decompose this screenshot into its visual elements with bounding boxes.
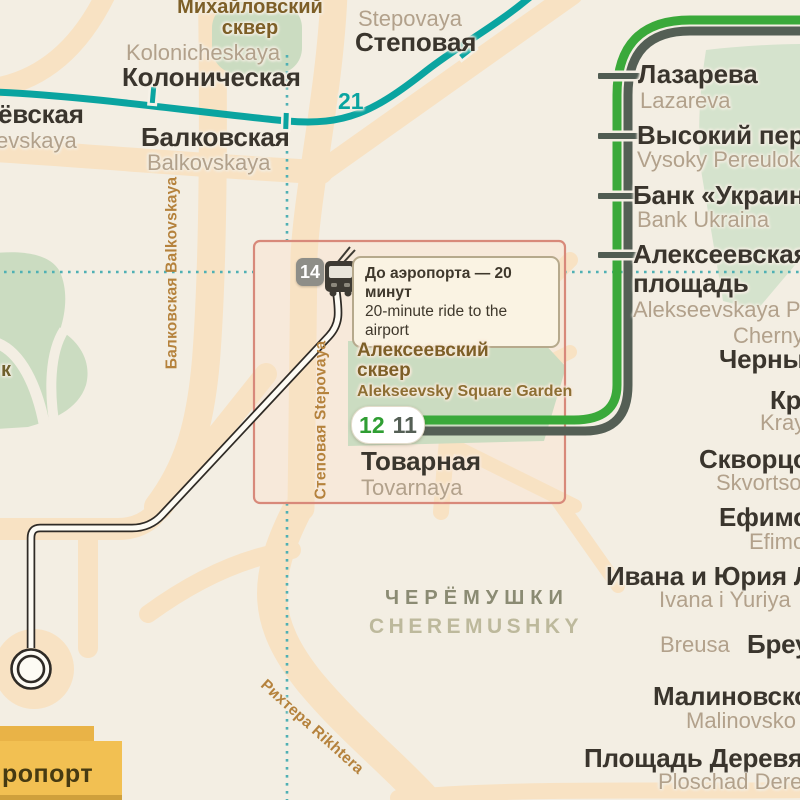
- route-number-21: 21: [338, 89, 364, 114]
- station-bank-ukraina: Банк «Украина: [633, 181, 800, 210]
- airport-tooltip: До аэропорта — 20 минут 20-minute ride t…: [352, 256, 560, 348]
- park-west-label-fragment: к: [1, 359, 11, 381]
- station-balkovskaya: Балковская: [141, 123, 290, 152]
- route-badge-12: 12: [359, 412, 385, 439]
- transit-map: ропорт ёвская evskaya Kolonicheskaya Кол…: [0, 0, 800, 800]
- station-alekseevskaya-ploschad: Алексеевская площадь: [633, 240, 800, 297]
- station-tovarnaya: Товарная: [361, 447, 481, 476]
- station-alekseevskaya-ploschad-translit: Alekseevskaya Pl: [633, 298, 800, 322]
- park-label-mikhailovsky: Михайловский сквер: [177, 0, 323, 39]
- station-lazareva-translit: Lazareva: [640, 89, 731, 113]
- station-efimo: Ефимо: [719, 503, 800, 532]
- district-label-ru: ЧЕРЁМУШКИ: [385, 587, 569, 609]
- airport-building-edge: [0, 795, 122, 800]
- station-tovarnaya-translit: Tovarnaya: [361, 476, 463, 500]
- station-kolonicheskaya: Колоническая: [122, 63, 301, 92]
- route-badge-11: 11: [393, 412, 417, 439]
- station-ploschad-derevyan-translit: Ploschad Derevyan: [658, 770, 800, 794]
- street-label-stepovaya: Степовая Stepovaya: [312, 341, 329, 500]
- park-alekseevsky-en: Alekseevsky Square Garden: [357, 384, 572, 401]
- station-bank-ukraina-translit: Bank Ukraina: [637, 208, 769, 232]
- park-label-mikhailovsky-line1: Михайловский: [177, 0, 323, 18]
- station-vysoky-pereulok-translit: Vysoky Pereulok: [637, 148, 800, 172]
- airport-tooltip-ru: До аэропорта — 20 минут: [365, 264, 547, 302]
- station-breusa: Бреу: [747, 630, 800, 659]
- district-label-en: CHEREMUSHKY: [369, 615, 583, 638]
- street-balkovskaya-ru: Балковская: [163, 277, 180, 369]
- station-malinovsko-translit: Malinovsko: [686, 709, 796, 733]
- station-breusa-translit: Breusa: [660, 633, 730, 657]
- station-malinovsko: Малиновско: [653, 682, 800, 711]
- airport-label: ропорт: [2, 761, 93, 789]
- station-ivana-i-yuriya-translit: Ivana i Yuriya: [659, 588, 791, 612]
- route-badges-12-11: 1211: [351, 406, 425, 444]
- station-evskaya-translit: evskaya: [0, 129, 77, 153]
- station-vysoky-pereulok: Высокий пере: [637, 121, 800, 150]
- street-stepovaya-ru: Степовая: [312, 425, 329, 500]
- street-stepovaya-en: Stepovaya: [312, 341, 329, 420]
- station-efimo-translit: Efimo: [749, 530, 800, 554]
- station-cherny: Черны: [719, 345, 800, 374]
- airport-tooltip-en: 20-minute ride to the airport: [365, 302, 547, 340]
- station-balkovskaya-translit: Balkovskaya: [147, 151, 271, 175]
- station-stepovaya: Степовая: [355, 28, 476, 57]
- street-label-balkovskaya: Балковская Balkovskaya: [163, 177, 180, 369]
- terminal-loop-inner: [18, 656, 44, 682]
- park-label-mikhailovsky-line2: сквер: [177, 18, 323, 39]
- station-lazareva: Лазарева: [638, 60, 758, 89]
- station-evskaya: ёвская: [0, 100, 84, 129]
- station-skvortso-translit: Skvortso: [716, 471, 800, 495]
- street-balkovskaya-en: Balkovskaya: [163, 177, 180, 273]
- park-alekseevsky-line1: Алексеевский: [357, 341, 572, 361]
- park-label-alekseevsky: Алексеевский сквер Alekseevsky Square Ga…: [357, 341, 572, 401]
- park-alekseevsky-line2: сквер: [357, 361, 572, 381]
- station-kray-translit: Kray: [760, 411, 800, 435]
